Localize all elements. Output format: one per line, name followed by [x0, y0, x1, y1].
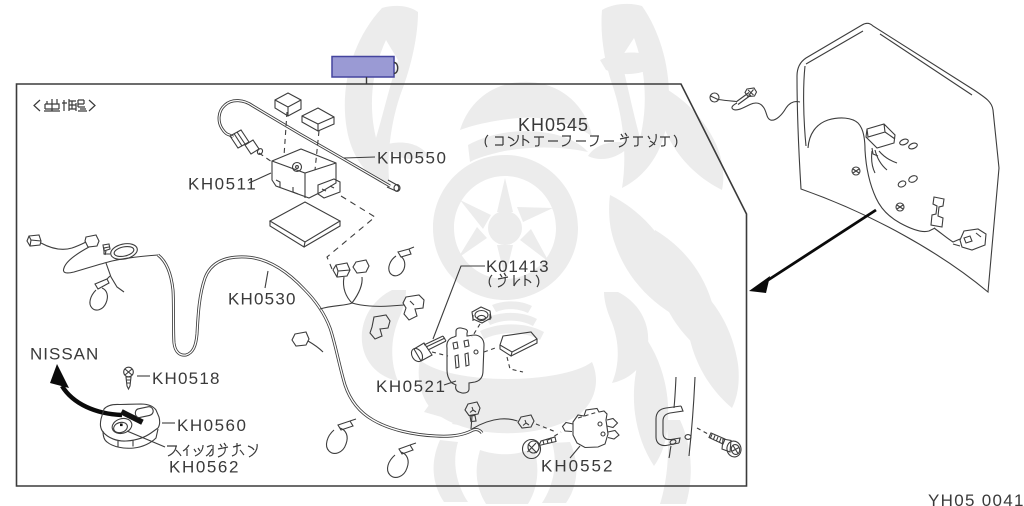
svg-text:KH0545: KH0545 — [518, 115, 589, 135]
svg-text:KH0530: KH0530 — [228, 290, 297, 309]
svg-text:K01413: K01413 — [486, 257, 549, 276]
svg-text:KH0552: KH0552 — [541, 457, 614, 476]
svg-text:KH0550: KH0550 — [377, 149, 447, 168]
svg-text:KH0562: KH0562 — [169, 458, 240, 477]
svg-text:KH0511: KH0511 — [188, 175, 257, 194]
svg-text:KH0518: KH0518 — [152, 369, 221, 388]
svg-text:KH0560: KH0560 — [177, 416, 247, 435]
svg-text:NISSAN: NISSAN — [30, 345, 99, 364]
svg-text:KH0521: KH0521 — [376, 377, 446, 396]
svg-text:YH05 0041: YH05 0041 — [928, 491, 1024, 506]
